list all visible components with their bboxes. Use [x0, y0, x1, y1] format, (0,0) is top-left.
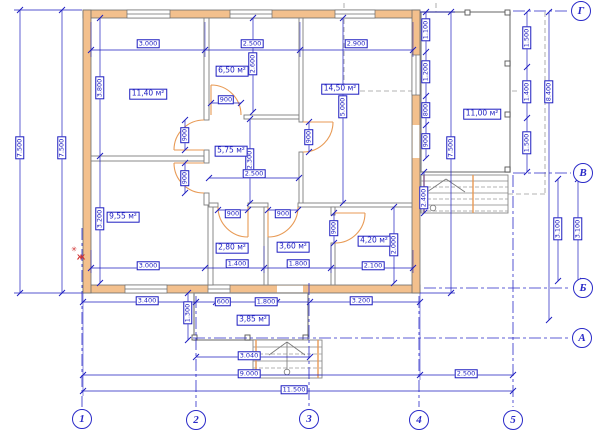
terrace [421, 10, 510, 172]
porch [192, 293, 308, 340]
terrace-stairs [421, 175, 508, 213]
porch-stairs [253, 340, 322, 378]
floor-plan-drawing [0, 0, 613, 437]
building-footprint [83, 10, 420, 293]
floor-plan-page: { "drawing": { "type": "architectural-fl… [0, 0, 613, 437]
